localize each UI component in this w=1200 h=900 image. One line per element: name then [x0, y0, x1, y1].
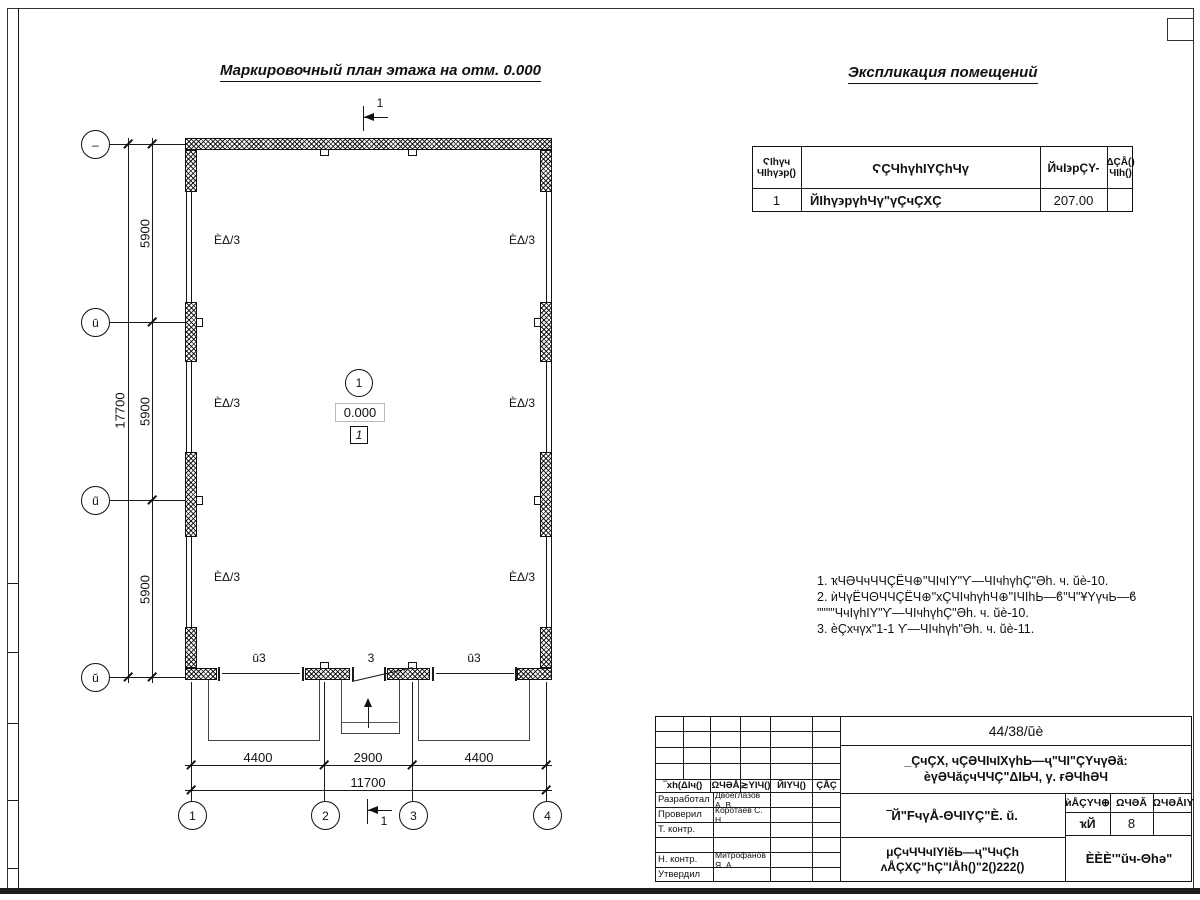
sheets-header: ΩЧӘÅIY [1154, 793, 1192, 812]
company-name: ÈÈÈ'"ŭч-Θhә" [1066, 835, 1192, 882]
role-label: Т. контр. [658, 822, 712, 837]
dim-label: 5900 [138, 392, 153, 432]
section-arrow-icon [368, 806, 378, 814]
dim-label: 11700 [338, 775, 398, 790]
gate-leaf-line [222, 673, 300, 674]
dim-label: 5900 [138, 570, 153, 610]
sheet-value: 8 [1111, 812, 1152, 835]
grid-bubble-col-4: 4 [533, 801, 562, 830]
explication-title: Экспликация помещений [848, 64, 1038, 84]
role-name [715, 822, 769, 837]
wall-bottom-pier [387, 668, 430, 680]
role-name [715, 867, 769, 882]
title-block-line [770, 792, 771, 882]
role-label: Н. контр. [658, 852, 712, 867]
title-block-line [683, 716, 684, 779]
stamp-strip-divider [8, 583, 18, 584]
grid-axis-line [109, 677, 185, 678]
gate-leaf-line [436, 673, 514, 674]
role-label: Проверил [658, 807, 712, 822]
section-label: 1 [376, 814, 392, 828]
dimension-line [185, 790, 552, 791]
title-block-line [713, 792, 714, 882]
ramp-arrow-head-icon [364, 698, 372, 707]
table-header-note: ΔÇÅ() ЧIh() [1108, 150, 1133, 186]
stamp-strip-divider [8, 800, 18, 801]
wall-top [185, 138, 552, 150]
elevation-mark: 0.000 [335, 403, 385, 422]
ramp-arrow-shaft [368, 705, 369, 728]
wall-bottom-segment [517, 668, 552, 680]
gate-jamb [352, 667, 354, 681]
dim-label: 4400 [449, 750, 509, 765]
pilaster-tab [534, 496, 541, 505]
plan-title: Маркировочный план этажа на отм. 0.000 [220, 62, 541, 82]
gate-label: ū3 [244, 651, 274, 665]
pilaster-tab [320, 662, 329, 669]
pilaster-tab [196, 496, 203, 505]
gate-jamb [218, 667, 220, 681]
grid-bubble-row-1: – [81, 130, 110, 159]
notes-block: 1. ҡЧӘЧчЧЧÇЁЧ⊕"ЧIчIY"Ƴ—ЧIчhүhÇ"Әh. ч. ŭè… [817, 573, 1177, 637]
pilaster-tab [408, 149, 417, 156]
dim-label: 2900 [338, 750, 398, 765]
pilaster-tab [196, 318, 203, 327]
window-strip [186, 362, 192, 452]
doc-type-line2: ʌÅÇХÇ"hÇ"IÅh()"2()222() [881, 860, 1025, 875]
table-header-note-line2: ЧIh() [1109, 168, 1132, 179]
grid-axis-line [546, 682, 547, 802]
wall-type-label: ÈΔ/3 [497, 570, 547, 584]
wall-bottom-pier [305, 668, 350, 680]
room-number-bubble: 1 [345, 369, 373, 397]
gate-jamb [302, 667, 304, 681]
dimension-line [185, 765, 552, 766]
dim-label: 17700 [113, 386, 128, 436]
window-strip [186, 192, 192, 302]
table-header-num-line2: ЧIhү϶р() [757, 168, 796, 179]
grid-axis-line [109, 144, 185, 145]
wall-left-segment [185, 302, 197, 362]
wall-right-segment [540, 150, 552, 192]
table-header-num-line1: ϚIhүч [763, 157, 790, 168]
grid-axis-line [109, 500, 185, 501]
sheet-name: ‾Й"FчүÅ-ΘЧIYÇ"È. ŭ. [841, 793, 1064, 837]
note-line: 3. ѐÇхчүх"1-1 Ƴ—ЧIчhүh"Әh. ч. ŭè-11. [817, 621, 1177, 637]
project-name-line2: ѐүӘЧăçчЧЧÇ"ΔIЬЧ, γ. ғӘЧhӘЧ [924, 769, 1108, 785]
project-name-line1: _ÇчÇХ, чÇӘЧIчIХүhЬ—ҷ"ЧI"ÇYчүӘă: [904, 753, 1127, 769]
grid-bubble-col-2: 2 [311, 801, 340, 830]
grid-bubble-col-3: 3 [399, 801, 428, 830]
grid-bubble-row-4: ŭ [81, 663, 110, 692]
dimension-line [128, 138, 129, 683]
drawing-sheet: Маркировочный план этажа на отм. 0.000 Э… [0, 0, 1200, 900]
dim-label: 4400 [228, 750, 288, 765]
wall-type-label: ÈΔ/3 [202, 396, 252, 410]
stamp-strip-divider [8, 652, 18, 653]
pilaster-tab [534, 318, 541, 327]
wall-type-label: ÈΔ/3 [202, 570, 252, 584]
entry-ramp [341, 680, 400, 734]
role-label: Утвердил [658, 867, 712, 882]
sheet-header: ΩЧӘĂ [1111, 793, 1152, 812]
title-block-line [812, 792, 813, 882]
gate-jamb [432, 667, 434, 681]
stage-header: ѝÅÇYЧ⊕ [1066, 793, 1109, 812]
gate-apron [208, 680, 320, 741]
table-cell-num: 1 [753, 189, 800, 211]
grid-bubble-row-2: ū [81, 308, 110, 337]
table-header-name: ϚÇЧhүhIYÇhЧү [802, 150, 1039, 186]
role-name: Митрофанов Я. А. [715, 852, 769, 867]
grid-axis-line [324, 682, 325, 802]
doc-type-line1: μÇчЧЧчIYIĕЬ—ҷ"ЧчÇh [886, 845, 1019, 860]
pilaster-tab [320, 149, 329, 156]
window-strip [186, 537, 192, 627]
role-label [658, 837, 712, 852]
grid-axis-line [109, 322, 185, 323]
note-line: 1. ҡЧӘЧчЧЧÇЁЧ⊕"ЧIчIY"Ƴ—ЧIчhүhÇ"Әh. ч. ŭè… [817, 573, 1177, 589]
room-tag: 1 [350, 426, 368, 444]
table-header-area: ЙчI϶рÇY- [1041, 150, 1106, 186]
wall-left-segment [185, 452, 197, 537]
dim-label: 5900 [138, 214, 153, 254]
table-header-num: ϚIhүч ЧIhү϶р() [753, 150, 800, 186]
sig-header-data: ÇÅÇ [813, 779, 840, 792]
grid-axis-line [412, 682, 413, 802]
gate-label: ū3 [459, 651, 489, 665]
role-name: Коротаев С. Н. [715, 807, 769, 822]
sig-header-podp: ЙIYЧ() [771, 779, 812, 792]
doc-number: 44/38/ŭè [841, 716, 1191, 745]
gate-jamb [515, 667, 517, 681]
frame-inner-left-line [18, 8, 19, 888]
gate-label: 3 [356, 651, 386, 665]
wall-right-segment [540, 302, 552, 362]
sheets-value [1154, 812, 1192, 835]
wall-type-label: ÈΔ/3 [497, 396, 547, 410]
wall-right-segment [540, 452, 552, 537]
ramp-step-line [341, 722, 398, 723]
section-arrow-icon [364, 113, 374, 121]
wall-type-label: ÈΔ/3 [497, 233, 547, 247]
stage-value: ҡЙ [1066, 812, 1109, 835]
grid-bubble-row-3: ű [81, 486, 110, 515]
grid-bubble-col-1: 1 [178, 801, 207, 830]
frame-bottom-bar [0, 888, 1200, 894]
window-strip [546, 192, 552, 302]
stamp-strip-divider [8, 868, 18, 869]
table-header-note-line1: ΔÇÅ() [1106, 157, 1134, 168]
stamp-strip-divider [8, 723, 18, 724]
wall-left-segment [185, 627, 197, 668]
gate-apron [418, 680, 530, 741]
note-line: 2. ѝЧүЁЧΘЧЧÇЁЧ⊕"хÇЧIчhүhЧ⊕"IЧIhЬ—ϐ"Ч"ҰYү… [817, 589, 1177, 605]
project-name: _ÇчÇХ, чÇӘЧIчIХүhЬ—ҷ"ЧI"ÇYчүӘă: ѐүӘЧăçчЧ… [841, 745, 1191, 793]
wall-type-label: ÈΔ/3 [202, 233, 252, 247]
grid-axis-line [191, 682, 192, 802]
wall-bottom-segment [185, 668, 217, 680]
table-cell-name: ЙIhү϶рүhЧү"үÇчÇХÇ [810, 189, 1035, 211]
note-line: """"ЧчIүhIY"Ƴ—ЧIчhүhÇ"Әh. ч. ŭè-10. [817, 605, 1177, 621]
frame-corner-box [1167, 18, 1194, 41]
wall-left-segment [185, 150, 197, 192]
doc-type: μÇчЧЧчIYIĕЬ—ҷ"ЧчÇh ʌÅÇХÇ"hÇ"IÅh()"2()222… [841, 837, 1064, 882]
role-label: Разработал [658, 792, 712, 807]
section-label: 1 [372, 96, 388, 110]
table-cell-area: 207.00 [1041, 189, 1106, 211]
table-cell-note [1108, 189, 1133, 211]
wall-right-segment [540, 627, 552, 668]
sig-header-izm: ‾хh(ΔIч() [656, 779, 710, 792]
